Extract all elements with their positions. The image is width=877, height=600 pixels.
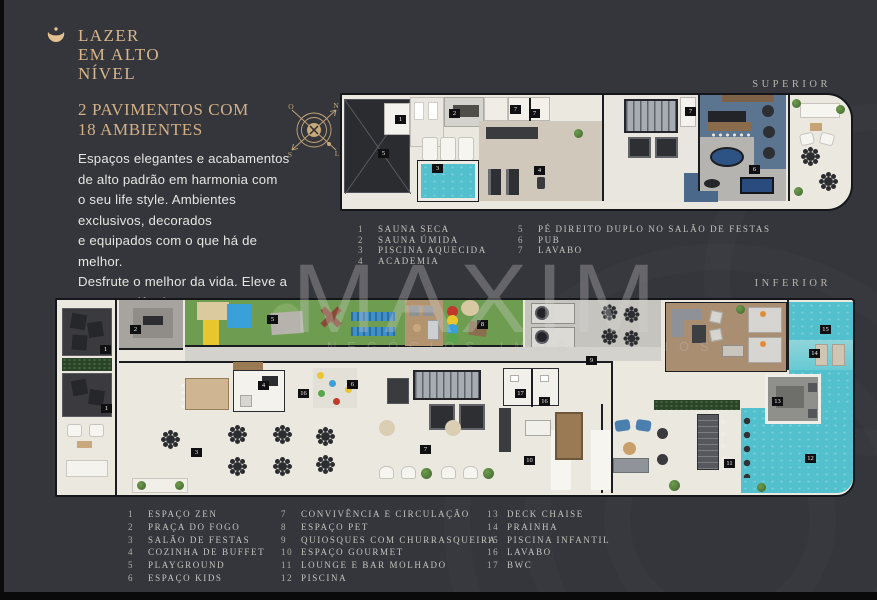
plan-marker: 7 <box>510 105 521 114</box>
plan-marker: 15 <box>820 325 831 334</box>
legend-item: 4COZINHA DE BUFFET <box>128 546 265 559</box>
legend-item: 3SALÃO DE FESTAS <box>128 534 265 547</box>
legend-item: 14PRAINHA <box>487 521 610 534</box>
plan-marker: 1 <box>100 345 111 354</box>
legend-item: 5PLAYGROUND <box>128 559 265 572</box>
plan-marker: 12 <box>805 454 816 463</box>
inferior-markers: 2115894166371716101514131211 <box>57 300 853 495</box>
inferior-floor-label: INFERIOR <box>755 278 831 289</box>
plan-marker: 1 <box>101 404 112 413</box>
plan-marker: 13 <box>772 397 783 406</box>
plan-marker: 14 <box>809 349 820 358</box>
page-edge-bottom <box>0 592 877 600</box>
plan-marker: 16 <box>539 397 550 406</box>
legend-item: 15PISCINA INFANTIL <box>487 534 610 547</box>
plan-marker: 5 <box>267 315 278 324</box>
plan-marker: 4 <box>534 166 545 175</box>
legend-inferior-col2: 7CONVIVÊNCIA E CIRCULAÇÃO8ESPAÇO PET9QUI… <box>281 508 497 585</box>
plan-marker: 16 <box>298 389 309 398</box>
legend-superior-col2: 5PÉ DIREITO DUPLO NO SALÃO DE FESTAS6PUB… <box>518 224 771 256</box>
plan-marker: 1 <box>395 115 406 124</box>
plan-marker: 3 <box>432 164 443 173</box>
legend-item: 3PISCINA AQUECIDA <box>358 245 487 256</box>
plan-marker: 7 <box>529 109 540 118</box>
plan-marker: 6 <box>749 165 760 174</box>
legend-item: 9QUIOSQUES COM CHURRASQUEIRA <box>281 534 497 547</box>
legend-item: 16LAVABO <box>487 546 610 559</box>
intro-paragraph: Espaços elegantes e acabamentos de alto … <box>78 149 330 313</box>
page-title: 2 PAVIMENTOS COM 18 AMBIENTES <box>78 100 249 139</box>
legend-item: 6PUB <box>518 235 771 246</box>
legend-inferior-col3: 13DECK CHAISE14PRAINHA15PISCINA INFANTIL… <box>487 508 610 572</box>
plan-marker: 6 <box>347 380 358 389</box>
floorplan-superior: 127753476 <box>340 93 853 211</box>
plan-marker: 4 <box>258 381 269 390</box>
plan-marker: 9 <box>586 356 597 365</box>
superior-floor-label: SUPERIOR <box>752 79 831 90</box>
legend-item: 10ESPAÇO GOURMET <box>281 546 497 559</box>
legend-superior-col1: 1SAUNA SECA2SAUNA ÚMIDA3PISCINA AQUECIDA… <box>358 224 487 267</box>
plan-marker: 5 <box>378 149 389 158</box>
legend-item: 2PRAÇA DO FOGO <box>128 521 265 534</box>
legend-item: 1SAUNA SECA <box>358 224 487 235</box>
legend-item: 8ESPAÇO PET <box>281 521 497 534</box>
legend-item: 12PISCINA <box>281 572 497 585</box>
legend-item: 5PÉ DIREITO DUPLO NO SALÃO DE FESTAS <box>518 224 771 235</box>
plan-marker: 2 <box>449 109 460 118</box>
legend-item: 11LOUNGE E BAR MOLHADO <box>281 559 497 572</box>
plan-marker: 7 <box>420 445 431 454</box>
plan-marker: 11 <box>724 459 735 468</box>
plan-marker: 7 <box>685 107 696 116</box>
plan-marker: 8 <box>477 320 488 329</box>
plan-marker: 10 <box>524 456 535 465</box>
page-edge-left <box>0 0 4 600</box>
superior-markers: 127753476 <box>342 95 851 209</box>
compass-letter-o: O <box>288 102 294 111</box>
legend-item: 2SAUNA ÚMIDA <box>358 235 487 246</box>
brochure-page: LAZER EM ALTO NÍVEL 2 PAVIMENTOS COM 18 … <box>0 0 877 600</box>
legend-item: 4ACADEMIA <box>358 256 487 267</box>
plan-marker: 17 <box>515 389 526 398</box>
legend-inferior-col1: 1ESPAÇO ZEN2PRAÇA DO FOGO3SALÃO DE FESTA… <box>128 508 265 585</box>
compass-letter-l: L <box>335 149 340 158</box>
legend-item: 17BWC <box>487 559 610 572</box>
tagline: LAZER EM ALTO NÍVEL <box>78 26 160 83</box>
legend-item: 13DECK CHAISE <box>487 508 610 521</box>
plan-marker: 2 <box>130 325 141 334</box>
compass-letter-s: S <box>288 150 292 159</box>
compass-letter-n: N <box>333 101 339 110</box>
plan-marker: 3 <box>191 448 202 457</box>
floorplan-inferior: 2115894166371716101514131211 <box>55 298 855 497</box>
crescent-moon-icon <box>46 27 66 43</box>
legend-item: 6ESPAÇO KIDS <box>128 572 265 585</box>
compass-icon: N O S L <box>283 101 345 159</box>
legend-item: 7LAVABO <box>518 245 771 256</box>
legend-item: 1ESPAÇO ZEN <box>128 508 265 521</box>
legend-item: 7CONVIVÊNCIA E CIRCULAÇÃO <box>281 508 497 521</box>
